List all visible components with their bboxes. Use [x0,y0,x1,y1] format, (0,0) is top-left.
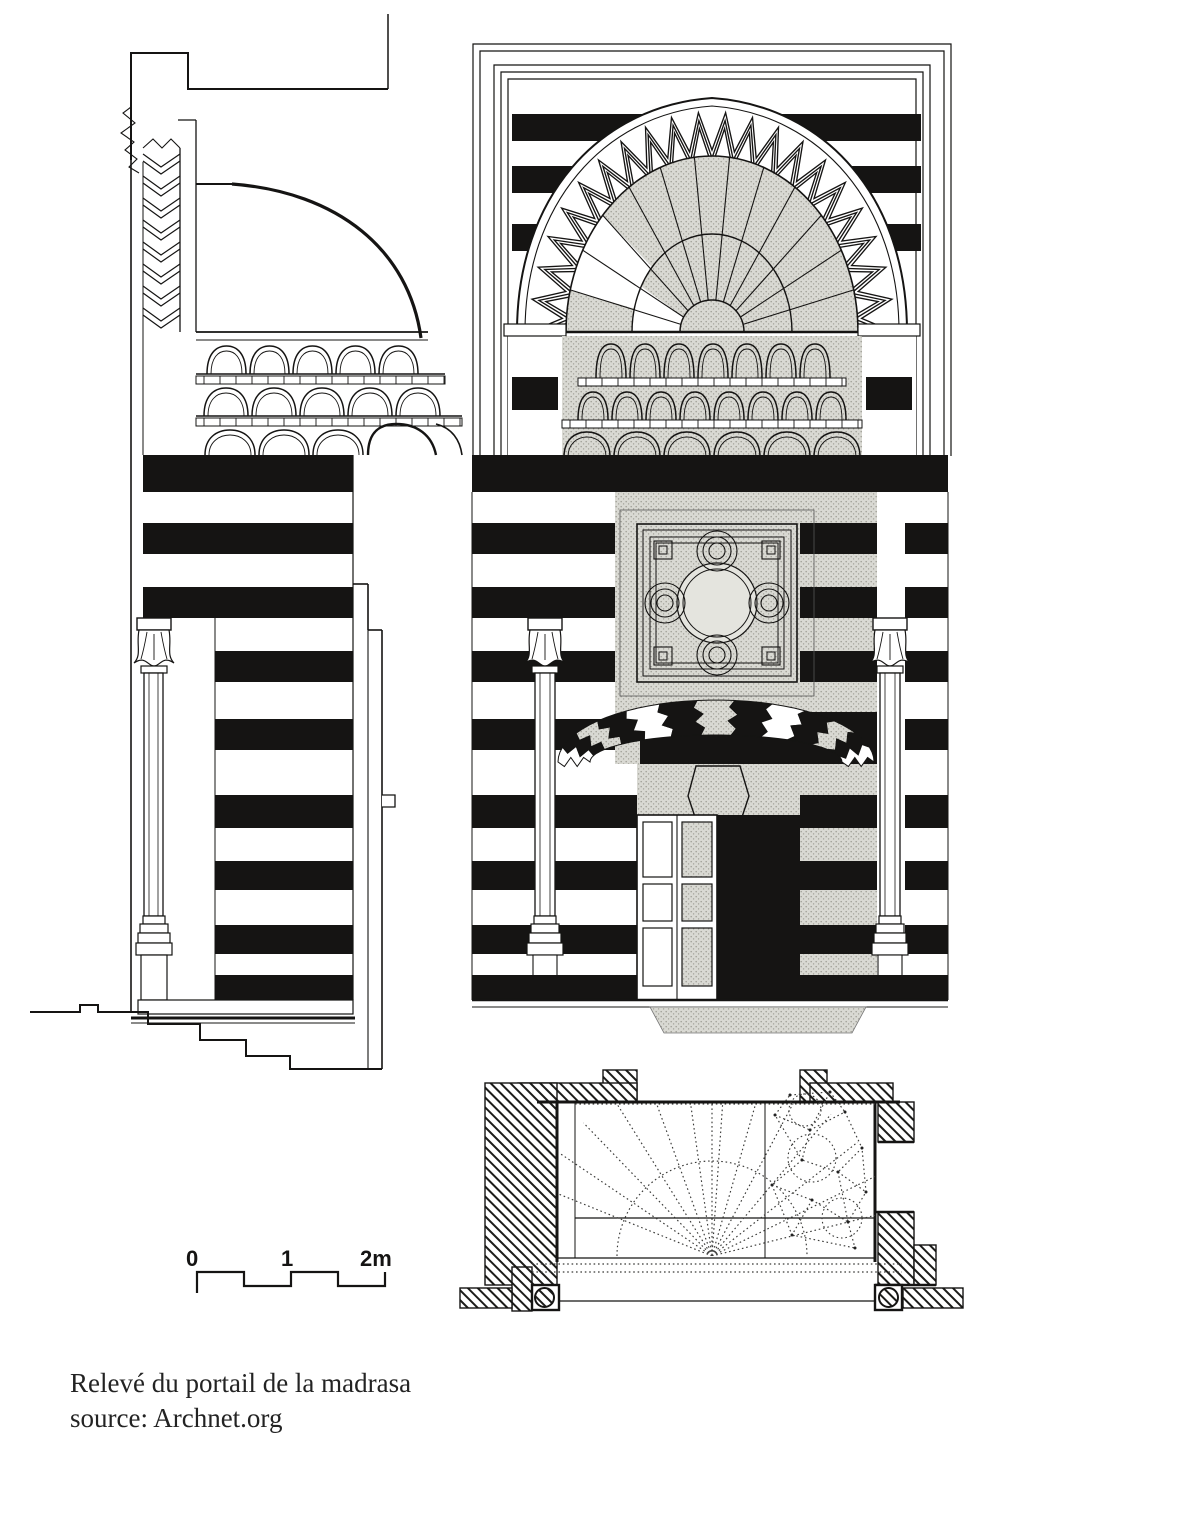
elevation-drawing [470,42,956,1037]
caption-title: Relevé du portail de la madrasa [70,1366,411,1401]
caption-source: source: Archnet.org [70,1401,411,1436]
scale-bar: 0 1 2m [186,1246,392,1293]
doorway-opening [717,815,800,1000]
drawing-sheet: 0 1 2m Relevé du portail de la madrasa s… [0,0,1184,1535]
scale-label-1: 1 [281,1246,293,1271]
figure-caption: Relevé du portail de la madrasa source: … [70,1366,411,1435]
door-leaf [637,815,717,1000]
section-drawing [30,10,470,1090]
scale-label-2m: 2m [360,1246,392,1271]
architectural-drawing: 0 1 2m [0,0,1184,1535]
plan-drawing [460,1070,963,1311]
muqarnas-tiers [562,336,862,457]
interlace-panel [620,510,814,696]
plan-muqarnas-web [771,1091,868,1250]
scale-bar-line [197,1272,385,1293]
scale-label-0: 0 [186,1246,198,1271]
